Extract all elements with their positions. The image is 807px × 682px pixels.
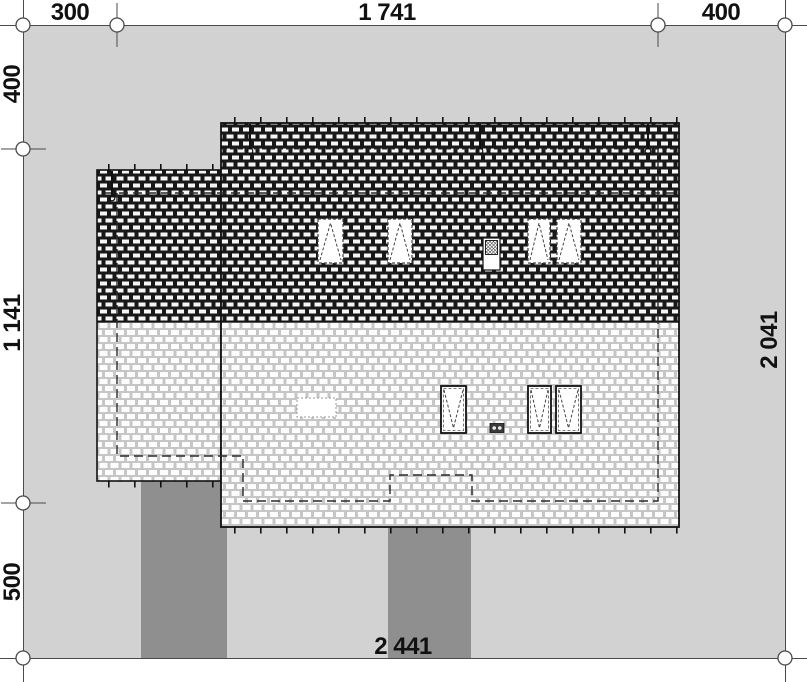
dim-label-top-1: 300 — [51, 0, 90, 26]
dimension-node-icon — [16, 18, 30, 32]
roof-hatch — [297, 398, 336, 417]
dim-label-left-2: 1 141 — [0, 294, 26, 352]
dimension-node-icon — [778, 651, 792, 665]
dim-label-top-2: 1 741 — [358, 0, 416, 26]
dim-label-left-3: 500 — [0, 563, 26, 602]
driveway — [141, 481, 227, 658]
garage-roof-upper-slope — [97, 170, 221, 322]
dimension-node-icon — [778, 18, 792, 32]
garage-roof — [97, 167, 221, 485]
site-plan-drawing: 300 1 741 400 400 1 141 500 2 041 2 441 — [0, 0, 807, 682]
roof-window — [441, 386, 466, 433]
chimney — [483, 238, 500, 270]
dimension-node-icon — [16, 651, 30, 665]
roof-window — [528, 219, 550, 263]
dim-label-top-3: 400 — [702, 0, 741, 26]
roof-window — [318, 219, 343, 263]
dim-label-left-1: 400 — [0, 65, 26, 104]
dimension-node-icon — [16, 496, 30, 510]
chimney-flue — [486, 241, 498, 255]
dimension-node-icon — [110, 18, 124, 32]
roof-plan-canvas: 300 1 741 400 400 1 141 500 2 041 2 441 — [0, 0, 807, 682]
garage-roof-lower-slope — [97, 322, 221, 481]
dim-label-right: 2 041 — [756, 311, 783, 369]
roof-window — [557, 219, 581, 263]
roof-window — [388, 219, 412, 263]
roof-window — [528, 386, 551, 433]
roof-window — [556, 386, 581, 433]
dimension-node-icon — [16, 142, 30, 156]
dimension-node-icon — [651, 18, 665, 32]
roof-vent — [490, 424, 504, 433]
dim-label-bottom: 2 441 — [374, 633, 432, 660]
main-roof-upper-slope — [221, 123, 679, 322]
